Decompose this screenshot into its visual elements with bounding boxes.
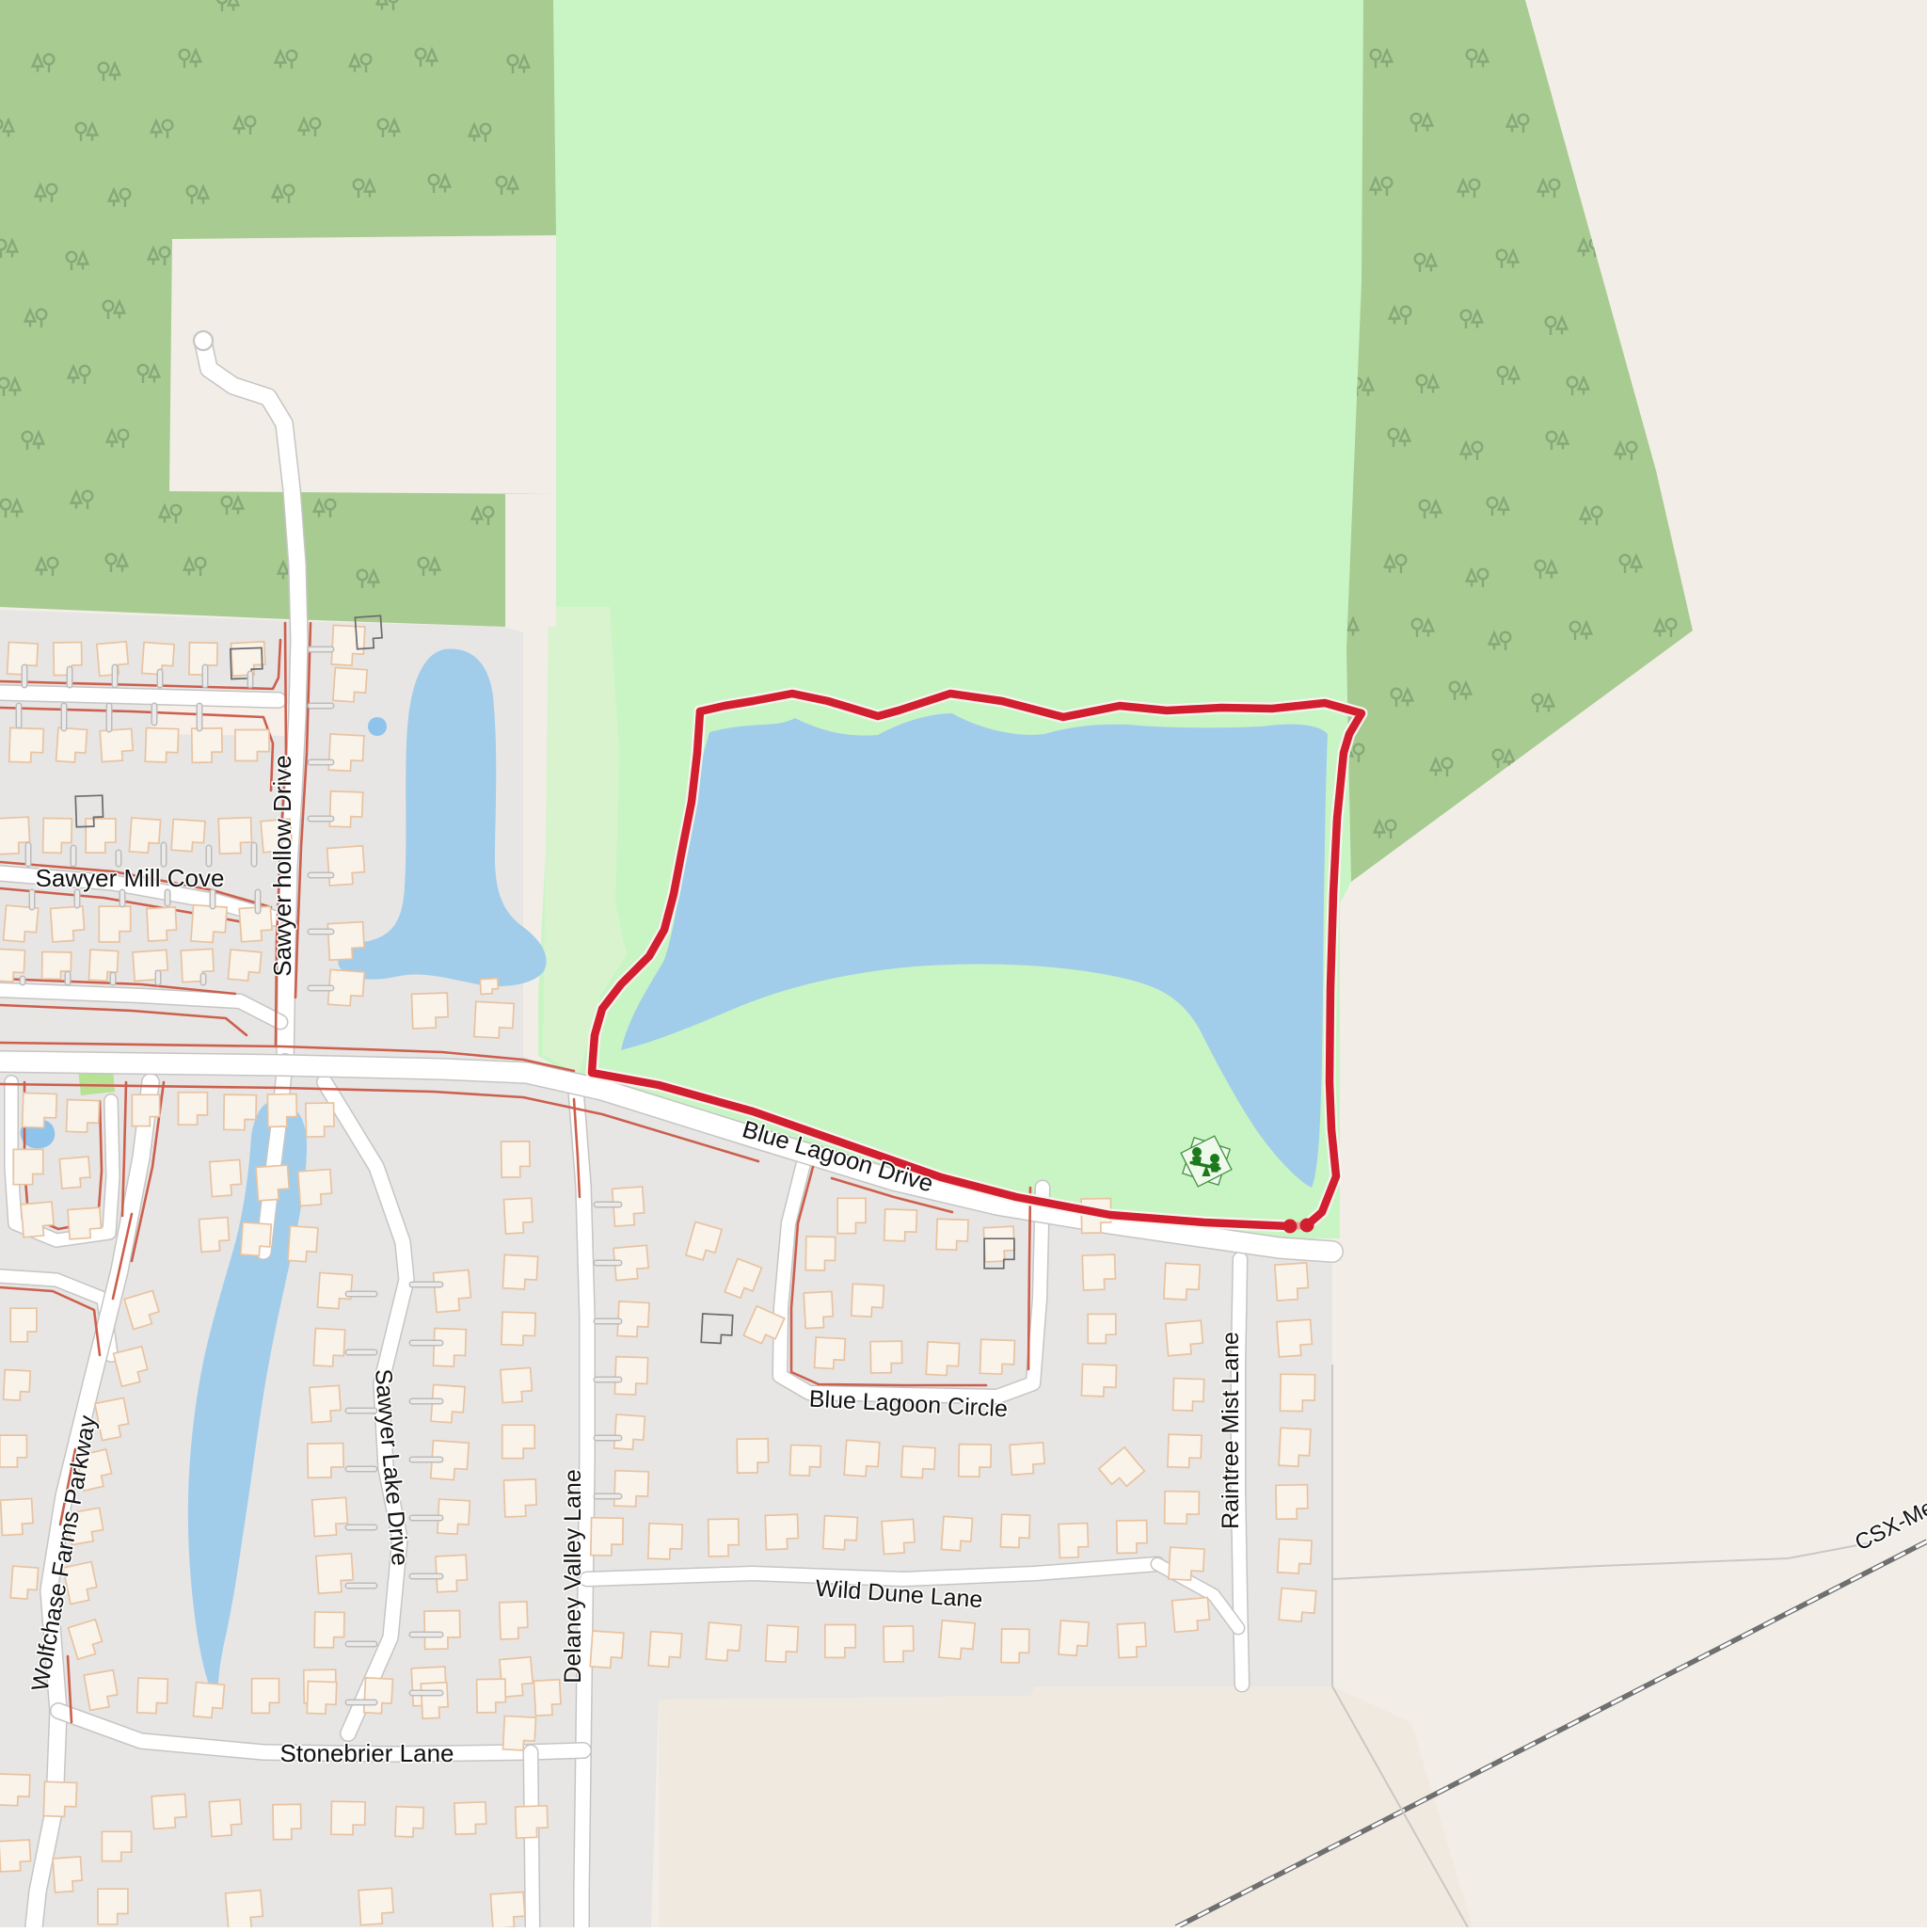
svg-text:Sawyer Mill Cove: Sawyer Mill Cove bbox=[36, 864, 225, 892]
svg-text:Delaney Valley Lane: Delaney Valley Lane bbox=[560, 1469, 586, 1683]
svg-text:Sawyer hollow Drive: Sawyer hollow Drive bbox=[268, 755, 296, 977]
svg-text:Raintree Mist Lane: Raintree Mist Lane bbox=[1218, 1332, 1244, 1529]
svg-text:Stonebrier Lane: Stonebrier Lane bbox=[279, 1739, 454, 1767]
